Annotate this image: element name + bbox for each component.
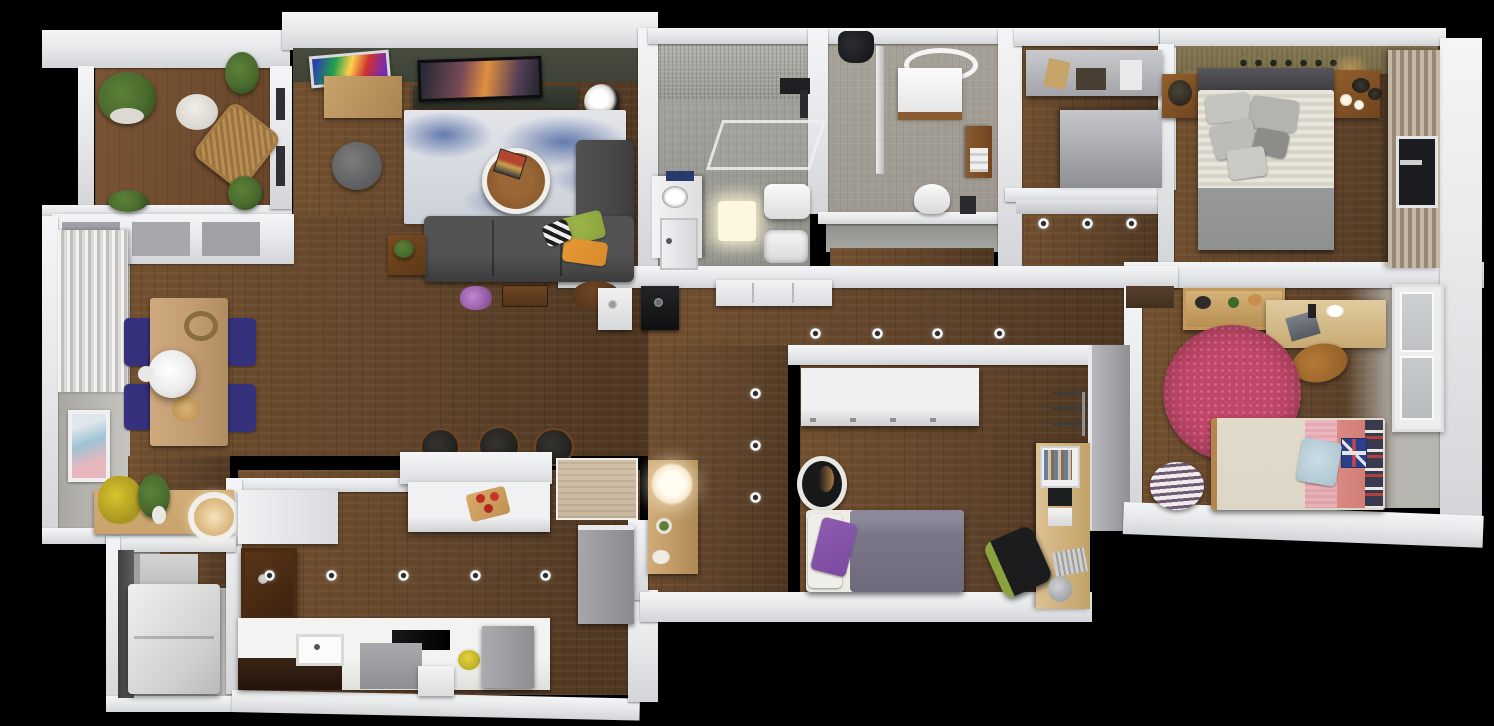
laundry-washer <box>128 584 220 694</box>
hall-black-cabinet-knob <box>654 298 663 307</box>
closet-corner-unit <box>1060 110 1162 188</box>
entry-mat <box>556 458 638 520</box>
kitchen-tall-cabinet <box>578 525 634 624</box>
desk-white-bin <box>1048 508 1072 526</box>
kids-desk-phone <box>1308 304 1316 318</box>
recessed-light <box>264 570 275 581</box>
recessed-light <box>872 328 883 339</box>
entry-bedroom2-bottom-wall <box>640 592 1092 622</box>
living-top-wall <box>282 12 658 50</box>
hall-black-cabinet <box>641 286 679 330</box>
master-headboard <box>1198 68 1334 92</box>
bathroom1-door <box>660 218 698 270</box>
dining-chair-top-left <box>124 318 152 366</box>
bathroom2-shelf-towels <box>970 148 988 172</box>
bathroom1-bidet <box>764 230 808 263</box>
kitchen-dark-wall-cabinet <box>241 548 297 620</box>
master-window-sash <box>1400 160 1422 165</box>
bedroom2-bed <box>806 510 964 592</box>
hall-sideboard <box>716 280 832 306</box>
console-yellow-flowers <box>98 476 142 524</box>
hall-sideboard-divider-2 <box>792 283 794 303</box>
master-window <box>1396 136 1438 208</box>
niche-wood-strip <box>830 248 994 268</box>
recessed-light <box>750 388 761 399</box>
side-table-plant <box>394 240 414 258</box>
hall-white-cabinet-knob <box>608 300 617 309</box>
tv <box>417 56 542 102</box>
kitchen-white-box <box>418 666 454 696</box>
bean-bag <box>332 142 382 190</box>
console-vase <box>152 506 166 524</box>
dining-curtains <box>58 230 128 392</box>
balcony-plant-top <box>225 52 259 94</box>
vanity-navy-towel <box>666 171 694 181</box>
closet-top-wall <box>1014 28 1174 46</box>
master-bed <box>1198 90 1334 250</box>
bathroom2-towel-robe <box>838 31 874 63</box>
balcony-shrub <box>108 190 148 212</box>
kitchen-faucet <box>314 644 320 650</box>
table-wreath-decor <box>184 311 218 341</box>
bathroom2-bottom-wall <box>818 212 1014 224</box>
balcony-window-slit-2 <box>276 146 285 186</box>
kitchen-upper-counter <box>238 490 338 544</box>
tomato-1 <box>476 494 485 503</box>
kids-window-glass <box>1400 292 1434 352</box>
master-foot-blanket <box>1198 188 1334 250</box>
recessed-light <box>750 440 761 451</box>
tomato-3 <box>484 504 493 513</box>
kids-window-glass-2 <box>1400 356 1434 420</box>
kids-blue-pillow <box>1295 437 1342 487</box>
bookshelf-toy-tan <box>1248 294 1262 306</box>
kids-desk <box>1266 300 1386 348</box>
bathroom2-vanity <box>898 68 962 118</box>
floor-flowers-purple <box>460 286 492 310</box>
dining-chair-bottom-left <box>124 384 152 430</box>
right-outer-wall <box>1440 38 1482 522</box>
bookshelf-toy-green <box>1228 297 1239 308</box>
fruit-bowl-yellow <box>456 648 482 672</box>
bathroom2-glass-screen <box>876 46 884 175</box>
floor-tray <box>502 285 548 307</box>
recessed-light <box>470 570 481 581</box>
bedroom2-duvet <box>850 510 964 592</box>
breakfast-bar <box>400 452 552 484</box>
kitchen-gray-unit <box>360 643 422 689</box>
master-decor-bowl <box>1352 78 1370 93</box>
recessed-light <box>750 492 761 503</box>
balcony-left-wall <box>78 66 94 211</box>
floor-plan-render <box>0 0 1494 726</box>
french-door-glass-2 <box>132 222 190 256</box>
kids-striped-pouf <box>1150 462 1204 510</box>
wall-hooks <box>1052 392 1085 436</box>
balcony-plant-bottom <box>228 176 262 210</box>
recessed-light <box>1126 218 1137 229</box>
laundry-washer-seam <box>134 636 214 639</box>
french-door-glass-3 <box>202 222 260 256</box>
sofa-seat-line <box>492 220 494 276</box>
recessed-light <box>810 328 821 339</box>
master-lamp-left <box>1168 80 1192 106</box>
media-cabinet <box>324 76 402 118</box>
master-decor-bowl-2 <box>1368 88 1382 100</box>
entry-cactus-pot <box>656 518 672 534</box>
balcony-floor-cushion <box>176 94 218 130</box>
dining-wall-art <box>68 410 110 482</box>
pendant-lamp-knob <box>138 366 154 382</box>
dining-chair-top-right <box>226 318 256 366</box>
master-pillow-2 <box>1248 95 1300 133</box>
bath2-closet-wall <box>998 28 1022 268</box>
balcony-plant-large-pot <box>110 108 144 124</box>
shower-glass-screen <box>706 120 826 170</box>
master-candles <box>1340 94 1352 106</box>
bathroom1-door-handle <box>666 238 672 244</box>
recessed-light <box>326 570 337 581</box>
bedroom2-top-wall <box>788 345 1090 365</box>
kids-dark-pillow-strip <box>1365 420 1383 508</box>
recessed-light <box>1082 218 1093 229</box>
bedroom2-planter-rim <box>818 466 834 492</box>
sofa-chaise <box>576 140 634 224</box>
wardrobe-handles <box>810 418 970 422</box>
bookshelf-toy-dark <box>1195 296 1211 309</box>
master-pillow-5 <box>1226 146 1268 181</box>
kids-union-jack-pillow <box>1341 438 1367 468</box>
vanity-plate-decor <box>662 186 688 208</box>
desk-printer <box>1048 488 1072 506</box>
dining-pendant-lamp <box>148 350 196 398</box>
entry-console-lamp <box>650 462 694 506</box>
bathroom1-toilet <box>764 184 810 219</box>
master-candle-2 <box>1354 100 1364 110</box>
closet-hall-beam <box>1016 200 1162 214</box>
kids-desk-clock <box>1326 305 1344 317</box>
bathroom2-toilet <box>914 184 950 214</box>
shower-arm <box>800 90 808 118</box>
glowing-bath-mat <box>718 201 756 241</box>
closet-item-white <box>1120 60 1142 90</box>
hallway-top-wall <box>558 266 1178 288</box>
master-top-wall <box>1160 28 1446 46</box>
hall-white-cabinet <box>598 288 632 330</box>
table-bread-plate <box>172 396 200 422</box>
bathrooms-top-wall <box>648 28 1014 44</box>
recessed-light <box>1038 218 1049 229</box>
console-round-lamp <box>188 492 240 542</box>
kids-bed <box>1211 418 1385 510</box>
recessed-light <box>932 328 943 339</box>
bathroom2-waste-bin <box>960 196 976 214</box>
bathroom2-vanity-drawer <box>898 112 962 120</box>
recessed-light <box>994 328 1005 339</box>
desk-books <box>1044 450 1072 480</box>
recessed-light <box>398 570 409 581</box>
kids-doormat <box>1126 286 1174 308</box>
recessed-light <box>540 570 551 581</box>
desk-trash-can <box>1048 576 1072 602</box>
entry-plate <box>652 550 670 564</box>
balcony-window-slit-1 <box>276 88 285 120</box>
dining-chair-bottom-right <box>226 384 256 432</box>
tomato-2 <box>490 492 499 501</box>
closet-item-dark <box>1076 68 1106 90</box>
kitchen-sink <box>296 634 344 666</box>
hall-sideboard-divider-1 <box>752 283 754 303</box>
dining-left-outer-wall <box>42 216 58 542</box>
kitchen-fridge <box>482 626 534 688</box>
laundry-bottom-wall <box>106 696 238 712</box>
